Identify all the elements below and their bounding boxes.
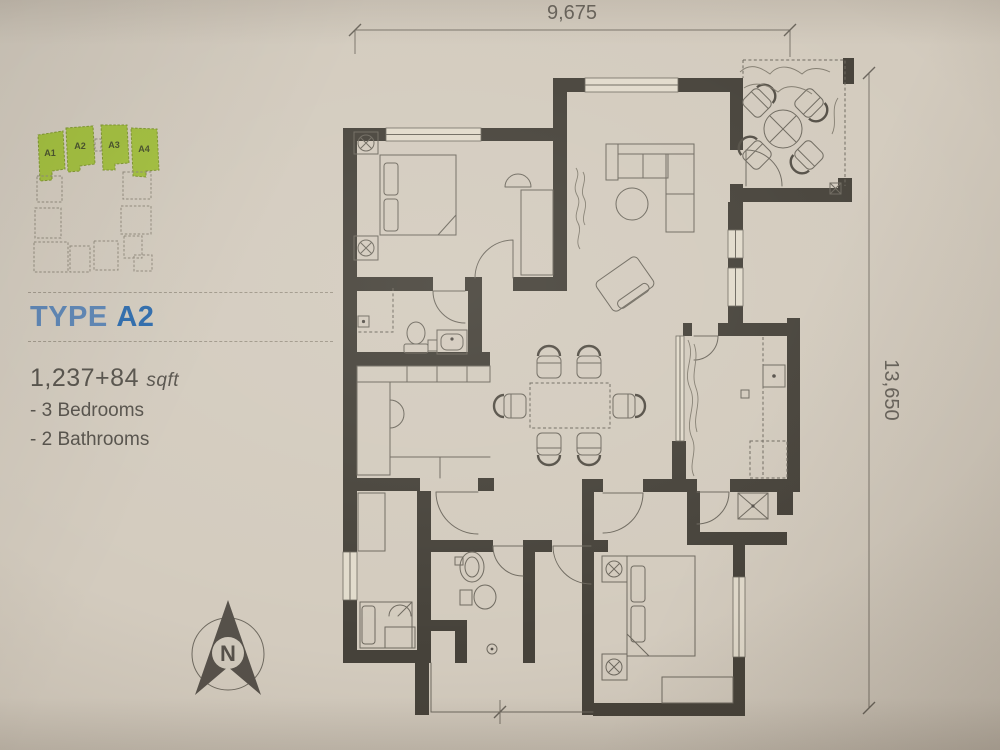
balcony-furniture [734,67,841,194]
kitchen-counters [357,366,490,478]
dimension-top: 9,675 [349,2,796,57]
info-panel: TYPE A2 1,237+84 sqft - 3 Bedrooms - 2 B… [28,292,333,451]
shower-room-fixtures [738,493,768,519]
foyer-wardrobe-hatch [521,190,553,275]
bathroom1-fixtures [358,288,467,354]
bedroom2-furniture [354,132,553,275]
type-heading-value: A2 [116,301,154,333]
key-plan: A1 A2 A3 A4 [34,125,159,272]
master-wardrobe-hatch [662,677,733,703]
curtain-sketch [687,340,698,476]
rule-bottom [28,341,333,342]
yard-outline [431,663,593,712]
windows [343,78,745,657]
north-label: N [220,641,236,666]
bedroom3-wardrobe-hatch [358,493,385,551]
rule-top [28,292,333,293]
brochure-photo: 9,675 13,650 [0,0,1000,750]
dimension-right-label: 13,650 [880,359,902,420]
master-bedroom-furniture [602,556,733,703]
area-unit: sqft [146,370,179,391]
type-heading: TYPE A2 [30,301,333,334]
dimension-top-label: 9,675 [547,2,597,24]
coffee-table [616,188,648,220]
living-room-furniture [575,144,694,314]
bedroom3-furniture [358,493,415,648]
key-unit-a1-label: A1 [44,148,56,158]
type-heading-prefix: TYPE [30,301,108,333]
key-unit-a2-label: A2 [74,141,86,151]
dimension-right: 13,650 [863,67,902,714]
north-arrow: N [192,600,264,695]
dining-furniture [494,346,645,465]
area-text: 1,237+84 sqft [30,364,333,393]
feature-bedrooms: - 3 Bedrooms [30,400,333,422]
balcony-outline [743,60,845,186]
area-value: 1,237+84 [30,364,139,392]
feature-bathrooms: - 2 Bathrooms [30,429,333,451]
plant-sketch [575,168,585,249]
key-unit-a3-label: A3 [108,140,120,150]
key-unit-a4-label: A4 [138,144,150,154]
armchair [594,255,656,314]
